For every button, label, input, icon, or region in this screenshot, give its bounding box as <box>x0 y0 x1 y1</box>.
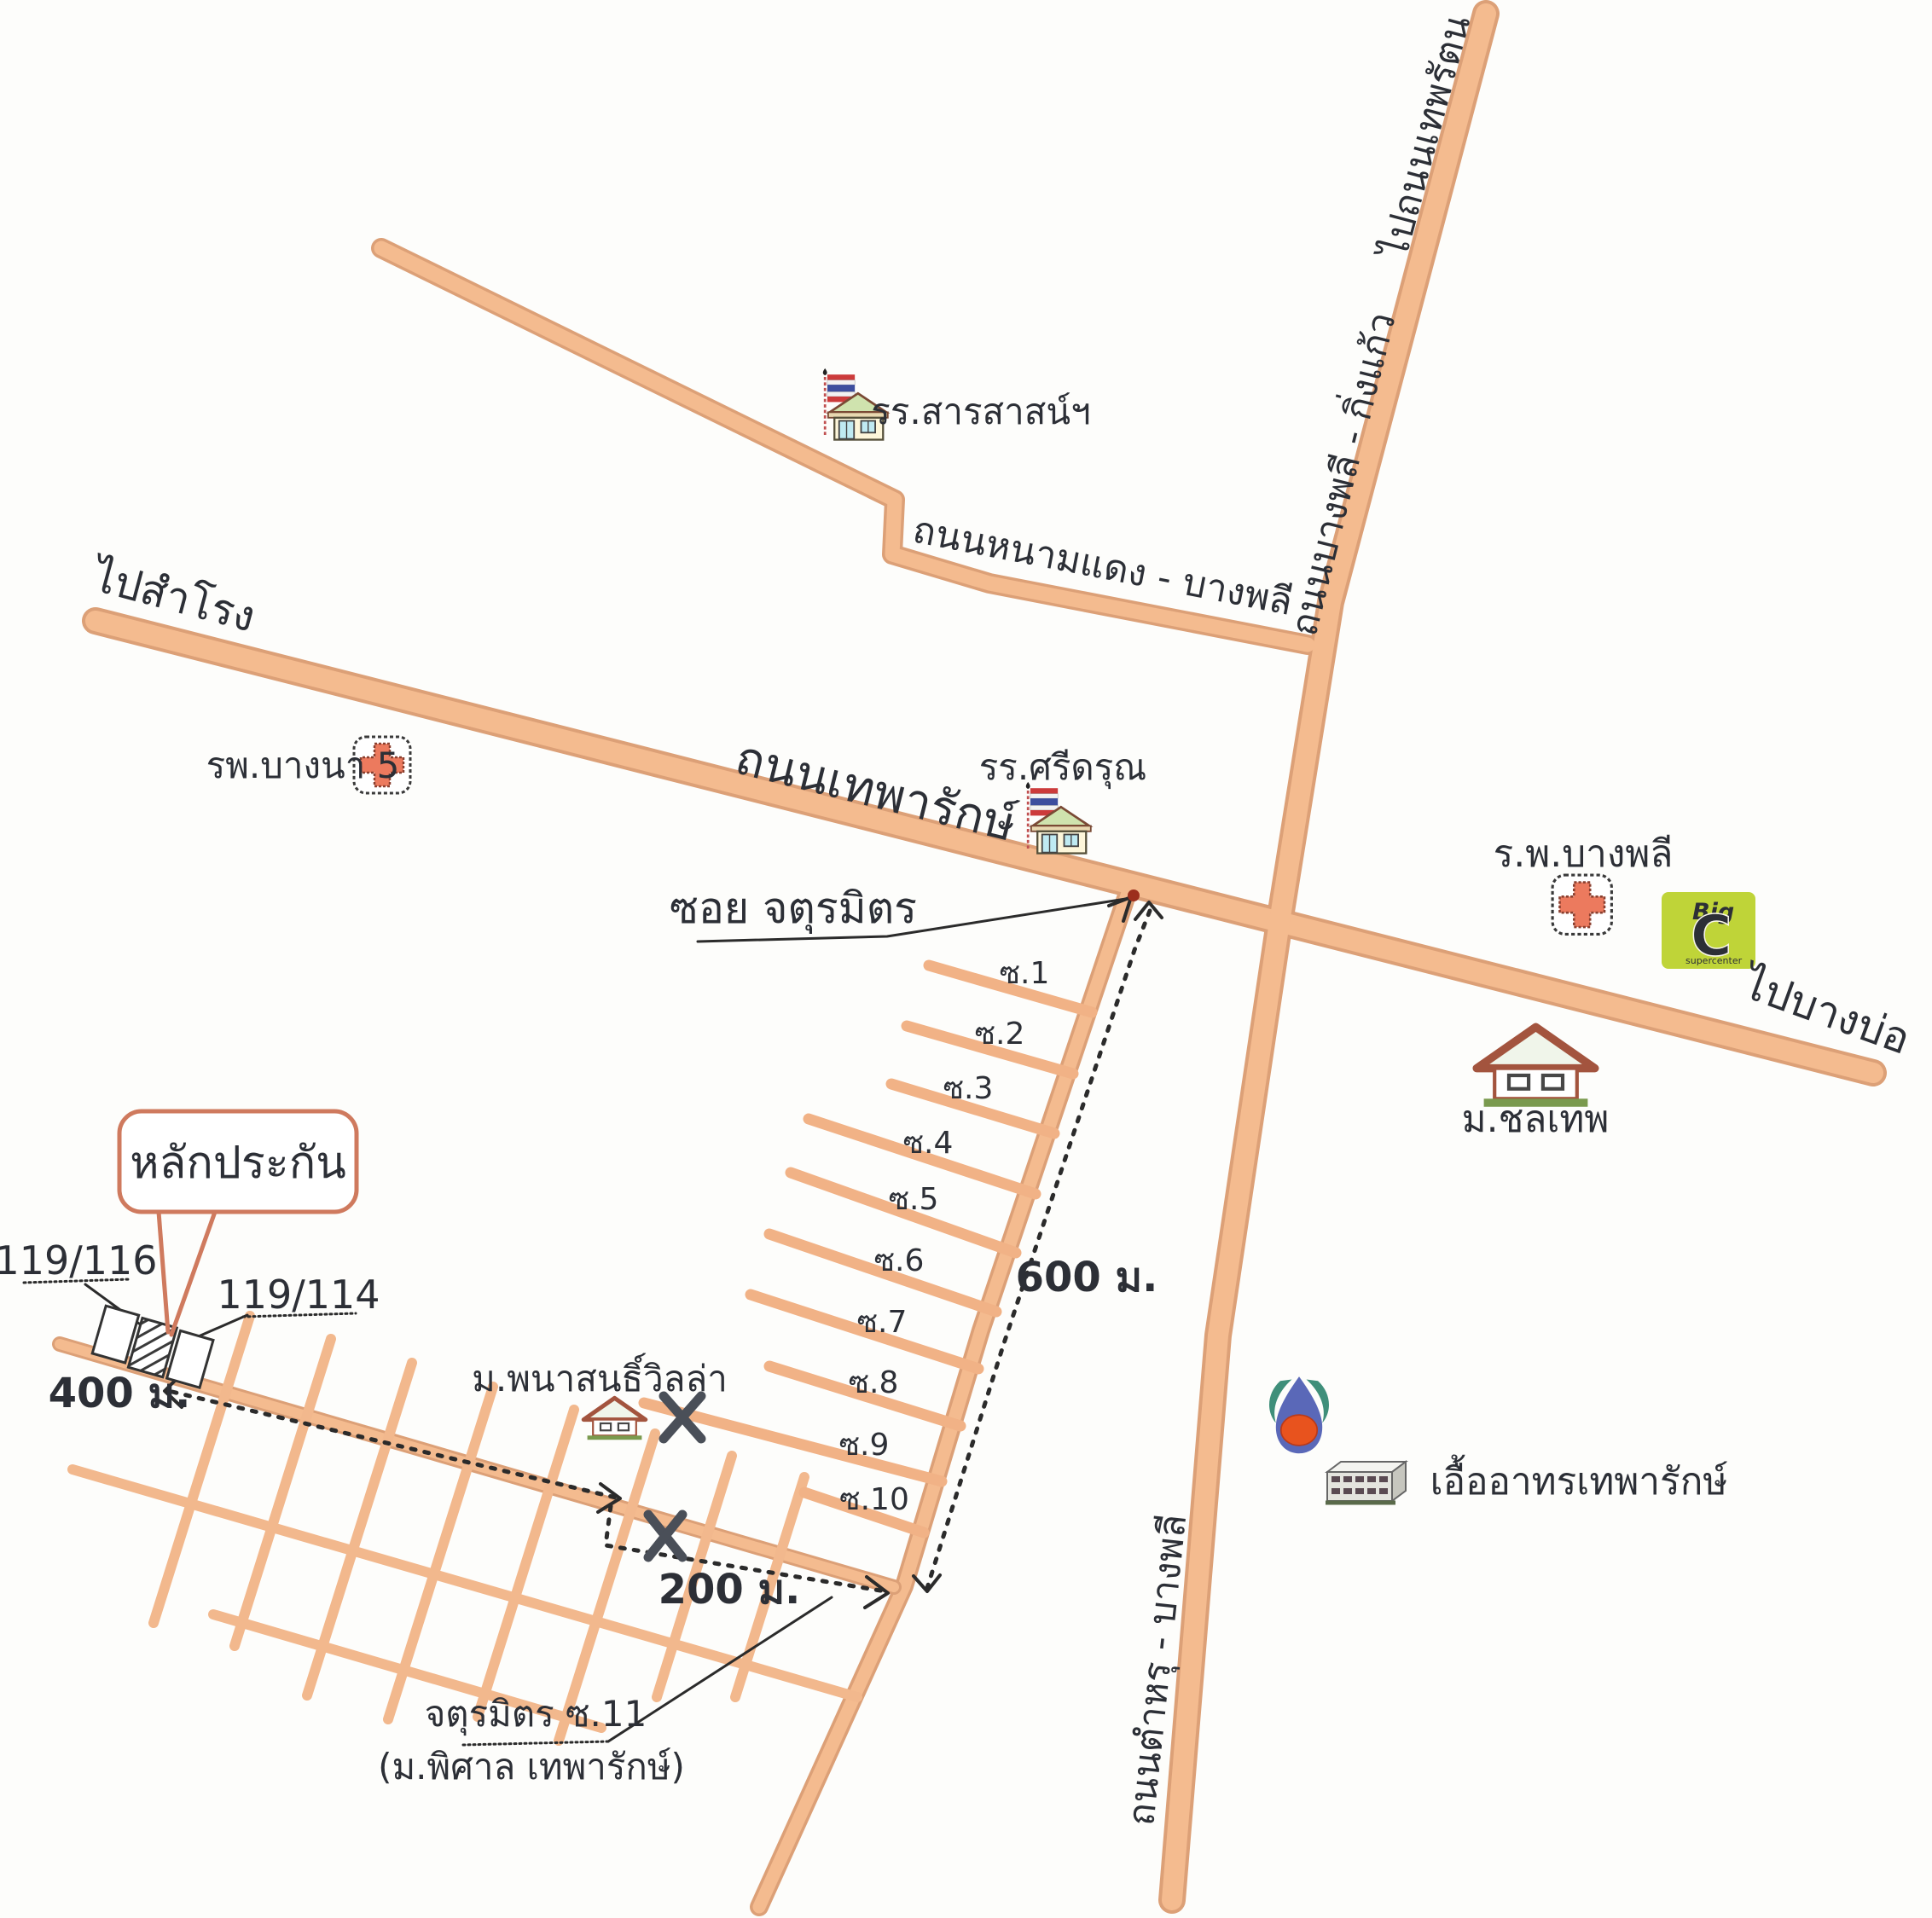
label-600m: 600 ม. <box>1016 1254 1158 1301</box>
map-canvas: หลักประกัน Big C supercenter <box>0 0 1932 1918</box>
label-hospital-bangna5: รพ.บางนา 5 <box>206 745 400 786</box>
label-200m: 200 ม. <box>659 1566 801 1614</box>
map-background <box>0 0 1932 1918</box>
bigc-sub-text: supercenter <box>1685 955 1743 966</box>
callout-label: หลักประกัน <box>130 1138 346 1189</box>
label-school-sarasas: รร.สารสาสน์ฯ <box>871 391 1090 432</box>
label-soi-2: ซ.2 <box>975 1017 1025 1052</box>
bigc-logo: Big C supercenter <box>1662 892 1755 969</box>
label-soi-7: ซ.7 <box>857 1305 908 1340</box>
junction-dot <box>1128 889 1140 901</box>
label-400m: 400 ม. <box>49 1370 191 1417</box>
apartment-icon <box>1326 1462 1406 1503</box>
map-page: หลักประกัน Big C supercenter <box>0 0 1932 1918</box>
label-soi-6: ซ.6 <box>874 1243 925 1278</box>
label-phanason: ม.พนาสนธิ์วิลล่า <box>472 1353 728 1399</box>
label-soi-jaturamit: ซอย จตุรมิตร <box>670 884 917 934</box>
label-soi11: จตุรมิตร ซ.11 <box>425 1693 647 1736</box>
label-plot-119-116: 119/116 <box>0 1237 158 1283</box>
label-hospital-bangphli: ร.พ.บางพลี <box>1494 832 1674 876</box>
label-chonthep: ม.ชลเทพ <box>1462 1098 1610 1141</box>
label-soi-9: ซ.9 <box>839 1428 890 1463</box>
label-plot-119-114: 119/114 <box>217 1272 380 1318</box>
label-uea-athon: เอื้ออาทรเทพารักษ์ <box>1430 1454 1728 1504</box>
hospital-icon-bangphli <box>1552 875 1611 934</box>
label-soi-1: ซ.1 <box>1000 956 1050 991</box>
label-soi-10: ซ.10 <box>839 1482 909 1517</box>
label-soi-5: ซ.5 <box>889 1182 939 1217</box>
label-soi-3: ซ.3 <box>943 1071 994 1106</box>
label-soi-4: ซ.4 <box>903 1126 954 1161</box>
label-soi11-sub: (ม.พิศาล เทพารักษ์) <box>378 1746 685 1788</box>
label-soi-8: ซ.8 <box>849 1365 899 1400</box>
label-school-sridarun: รร.ศรีดรุณ <box>979 746 1147 790</box>
